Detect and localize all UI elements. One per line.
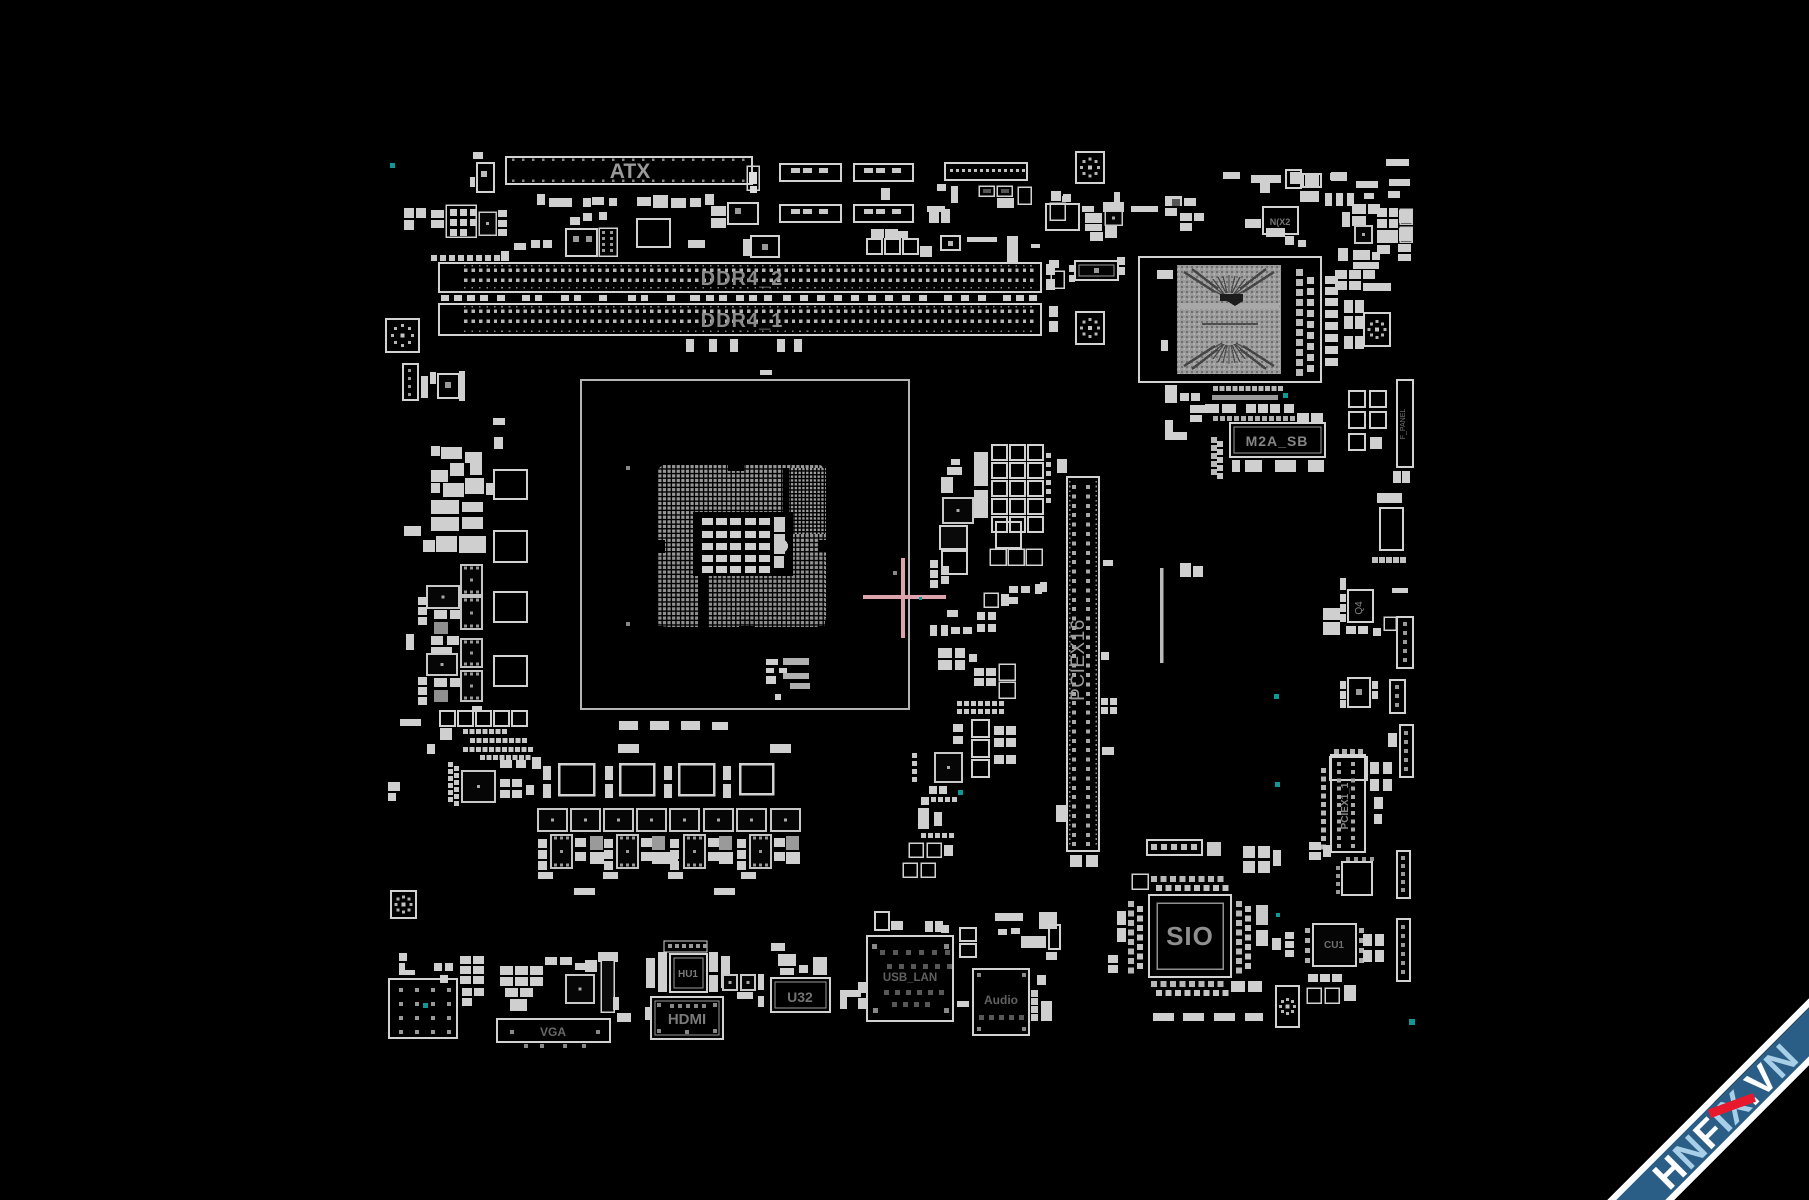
svg-text:F_PANEL: F_PANEL <box>1400 409 1407 440</box>
svg-text:PCIEX16: PCIEX16 <box>1068 619 1089 701</box>
svg-text:ATX: ATX <box>610 160 650 183</box>
svg-text:M2A_SB: M2A_SB <box>1246 433 1309 449</box>
svg-text:PCIEX1_1: PCIEX1_1 <box>1340 782 1351 829</box>
svg-text:N(X2: N(X2 <box>1270 217 1291 227</box>
svg-text:DDR4_2: DDR4_2 <box>701 268 784 290</box>
svg-text:SIO: SIO <box>1166 921 1214 951</box>
svg-text:HDMI: HDMI <box>668 1011 706 1028</box>
svg-text:VGA: VGA <box>540 1025 566 1039</box>
svg-text:Audio: Audio <box>984 993 1018 1007</box>
svg-text:DDR4_1: DDR4_1 <box>701 310 784 332</box>
svg-text:USB_LAN: USB_LAN <box>883 972 937 984</box>
svg-text:HU1: HU1 <box>678 969 698 980</box>
svg-text:CU1: CU1 <box>1324 940 1344 951</box>
svg-text:U32: U32 <box>787 989 813 1005</box>
svg-text:Q4: Q4 <box>1354 601 1365 615</box>
